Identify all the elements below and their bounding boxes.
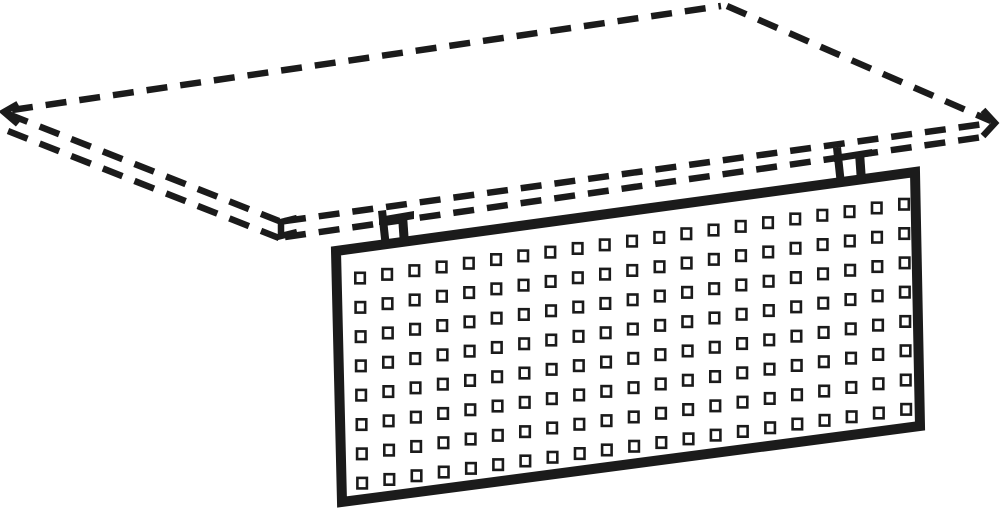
panel-hole xyxy=(547,393,557,404)
panel-hole xyxy=(764,305,774,316)
panel-hole xyxy=(711,430,721,441)
panel-hole xyxy=(655,291,665,302)
panel-hole xyxy=(628,265,638,276)
panel-hole xyxy=(682,258,692,269)
panel-hole xyxy=(356,331,366,342)
panel-hole xyxy=(601,357,611,368)
panel-hole xyxy=(439,438,449,449)
panel-hole xyxy=(901,375,911,386)
panel-hole xyxy=(410,324,420,335)
panel-hole xyxy=(627,236,637,247)
panel-hole xyxy=(792,360,802,371)
panel-hole xyxy=(521,456,531,467)
panel-hole xyxy=(765,364,775,375)
panel-hole xyxy=(791,243,801,254)
panel-hole xyxy=(575,419,585,430)
panel-hole xyxy=(519,251,529,262)
panel-hole xyxy=(709,254,719,265)
panel-hole xyxy=(383,357,393,368)
panel-hole xyxy=(684,434,694,445)
panel-hole xyxy=(384,416,394,427)
panel-hole xyxy=(628,324,638,335)
panel-hole xyxy=(845,265,855,276)
panel-hole xyxy=(519,339,529,350)
panel-hole xyxy=(410,265,420,276)
panel-hole xyxy=(682,287,692,298)
panel-hole xyxy=(465,346,475,357)
panel-hole xyxy=(383,298,393,309)
panel-hole xyxy=(355,273,365,284)
panel-hole xyxy=(411,441,421,452)
panel-hole xyxy=(629,382,639,393)
panel-hole xyxy=(847,412,857,423)
panel-hole xyxy=(600,269,610,280)
panel-hole xyxy=(573,243,583,254)
panel-hole xyxy=(411,353,421,364)
panel-hole xyxy=(792,331,802,342)
panel-hole xyxy=(846,294,856,305)
panel-hole xyxy=(847,382,857,393)
panel-hole xyxy=(901,404,911,415)
panel-hole xyxy=(683,316,693,327)
panel-hole xyxy=(872,203,882,214)
panel-hole xyxy=(819,327,829,338)
panel-hole xyxy=(493,459,503,470)
panel-hole xyxy=(710,342,720,353)
panel-hole xyxy=(385,474,395,485)
panel-hole xyxy=(738,368,748,379)
panel-hole xyxy=(411,383,421,394)
panel-hole xyxy=(491,254,501,264)
panel-hole xyxy=(819,357,829,368)
panel-hole xyxy=(412,471,422,482)
panel-hole xyxy=(438,379,448,390)
panel-hole xyxy=(793,419,803,430)
panel-hole xyxy=(765,423,775,434)
panel-hole xyxy=(520,397,530,408)
panel-hole xyxy=(575,448,585,459)
panel-hole xyxy=(466,434,476,445)
panel-hole xyxy=(546,306,556,317)
panel-hole xyxy=(738,397,748,408)
panel-hole xyxy=(683,346,693,357)
panel-hole xyxy=(764,276,774,287)
panel-hole xyxy=(439,467,449,478)
panel-hole xyxy=(901,346,911,357)
panel-hole xyxy=(901,316,911,327)
panel-hole xyxy=(574,360,584,371)
panel-hole xyxy=(466,405,476,416)
panel-hole xyxy=(736,221,746,232)
panel-hole xyxy=(411,412,421,423)
panel-hole xyxy=(465,317,475,328)
panel-hole xyxy=(602,445,612,456)
panel-hole xyxy=(710,371,720,382)
panel-hole xyxy=(438,408,448,419)
panel-hole xyxy=(765,393,775,404)
panel-hole xyxy=(546,247,556,258)
panel-hole xyxy=(737,309,747,320)
panel-hole xyxy=(711,401,721,412)
panel-hole xyxy=(573,273,583,284)
panel-hole xyxy=(819,386,829,397)
panel-hole xyxy=(845,236,855,247)
panel-hole xyxy=(683,404,693,415)
panel-hole xyxy=(820,415,830,426)
panel-hole xyxy=(872,232,882,243)
panel-hole xyxy=(792,390,802,401)
panel-hole xyxy=(548,452,558,463)
panel-hole xyxy=(900,258,910,269)
panel-hole xyxy=(465,375,475,386)
panel-hole xyxy=(819,298,829,309)
panel-hole xyxy=(546,276,556,287)
panel-hole xyxy=(574,390,584,401)
panel-hole xyxy=(709,283,719,294)
panel-hole xyxy=(629,353,639,364)
panel-hole xyxy=(629,441,639,452)
panel-hole xyxy=(464,258,474,269)
panel-hole xyxy=(900,287,910,298)
panel-hole xyxy=(709,225,719,236)
panel-hole xyxy=(602,386,612,397)
panel-hole xyxy=(384,445,394,456)
panel-hole xyxy=(846,324,856,335)
panel-hole xyxy=(356,361,366,372)
panel-hole xyxy=(846,353,856,364)
panel-hole xyxy=(383,328,393,339)
panel-hole xyxy=(574,302,584,313)
panel-hole xyxy=(657,437,667,448)
panel-hole xyxy=(845,206,855,217)
panel-hole xyxy=(493,430,503,441)
panel-hole xyxy=(710,313,720,324)
panel-hole xyxy=(519,309,529,320)
pegboard-under-desk-illustration xyxy=(0,0,1000,517)
panel-hole xyxy=(438,320,448,331)
panel-hole xyxy=(655,232,665,243)
panel-hole xyxy=(519,280,529,291)
panel-hole xyxy=(628,295,638,306)
panel-hole xyxy=(410,295,420,306)
panel-hole xyxy=(492,372,502,383)
panel-hole xyxy=(601,298,611,309)
technical-drawing-svg xyxy=(0,0,1000,517)
panel-hole xyxy=(874,349,884,360)
panel-hole xyxy=(437,291,447,302)
panel-hole xyxy=(356,302,366,313)
panel-hole xyxy=(629,412,639,423)
panel-hole xyxy=(818,239,828,250)
panel-hole xyxy=(357,419,367,430)
panel-hole xyxy=(764,247,774,258)
panel-hole xyxy=(682,229,692,240)
panel-hole xyxy=(601,328,611,339)
panel-hole xyxy=(547,423,557,434)
panel-hole xyxy=(382,269,392,280)
panel-hole xyxy=(873,291,883,302)
panel-hole xyxy=(547,335,557,346)
panel-hole xyxy=(437,262,447,273)
panel-hole xyxy=(492,284,502,295)
panel-hole xyxy=(357,449,367,460)
panel-hole xyxy=(492,313,502,324)
panel-hole xyxy=(738,426,748,437)
panel-hole xyxy=(655,320,665,331)
panel-hole xyxy=(520,368,530,379)
panel-hole xyxy=(466,463,476,474)
panel-hole xyxy=(874,379,884,390)
panel-hole xyxy=(547,364,557,375)
panel-hole xyxy=(765,335,775,346)
panel-hole xyxy=(873,320,883,331)
panel-hole xyxy=(899,199,909,210)
panel-hole xyxy=(656,379,666,390)
panel-hole xyxy=(763,217,773,228)
panel-hole xyxy=(464,287,474,298)
panel-hole xyxy=(357,478,367,489)
panel-hole xyxy=(737,338,747,349)
panel-hole xyxy=(520,426,530,437)
panel-hole xyxy=(791,302,801,313)
panel-hole xyxy=(900,228,910,239)
panel-hole xyxy=(818,269,828,280)
panel-hole xyxy=(818,210,828,221)
panel-hole xyxy=(874,408,884,419)
panel-hole xyxy=(656,349,666,360)
panel-hole xyxy=(602,415,612,426)
panel-hole xyxy=(736,250,746,261)
panel-hole xyxy=(438,350,448,361)
panel-hole xyxy=(493,401,503,412)
panel-hole xyxy=(737,280,747,291)
panel-hole xyxy=(600,240,610,251)
panel-hole xyxy=(356,390,366,401)
panel-hole xyxy=(574,331,584,342)
panel-hole xyxy=(873,261,883,272)
panel-hole xyxy=(656,408,666,419)
panel-hole xyxy=(384,386,394,397)
panel-hole xyxy=(492,342,502,353)
panel-hole xyxy=(655,262,665,273)
panel-hole xyxy=(683,375,693,386)
panel-hole xyxy=(791,214,801,225)
panel-hole xyxy=(791,272,801,283)
